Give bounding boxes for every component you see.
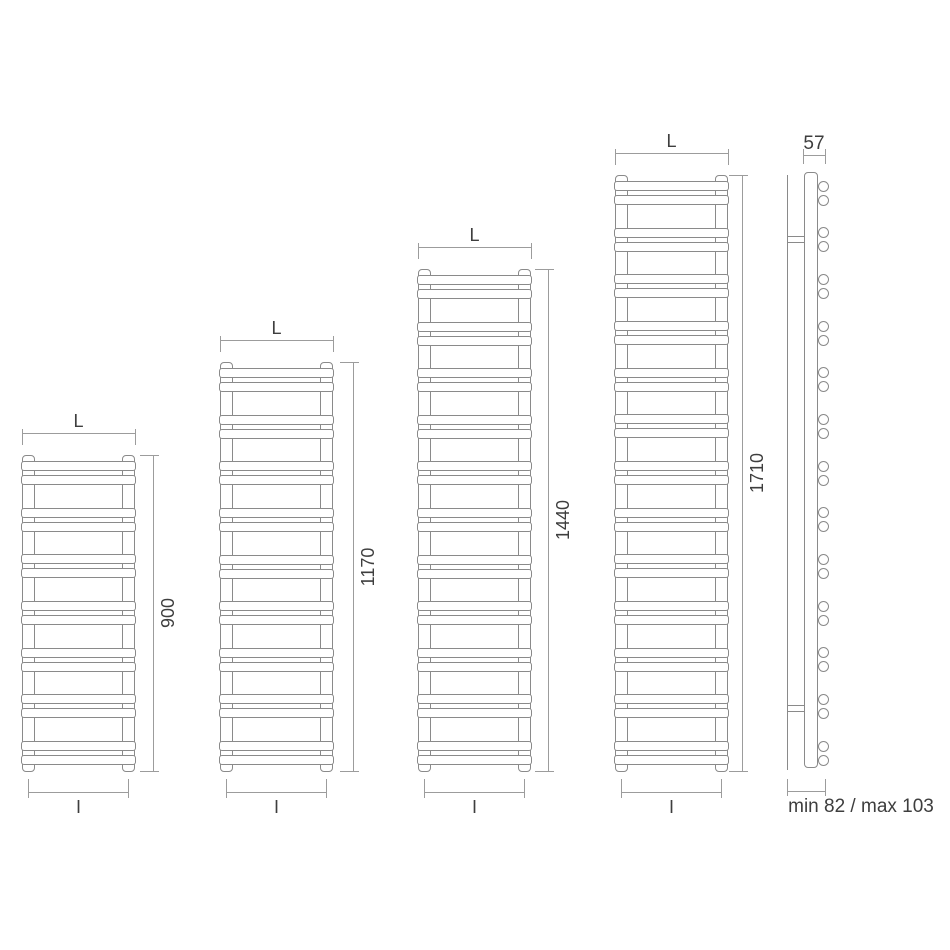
radiator-tube-right — [122, 455, 135, 772]
mounting-bracket-bottom — [788, 705, 804, 712]
radiator-rung — [21, 568, 136, 578]
radiator-rung — [614, 508, 729, 518]
radiator-rung — [21, 601, 136, 611]
radiator-rung — [417, 429, 532, 439]
radiator-rung — [417, 755, 532, 765]
width-dimension-line — [220, 340, 333, 341]
radiator-rung — [21, 508, 136, 518]
width-dimension-tick-left — [22, 429, 23, 445]
radiator-rung — [219, 755, 334, 765]
radiator-rung — [21, 615, 136, 625]
radiator-rung — [614, 708, 729, 718]
radiator-rung — [21, 708, 136, 718]
height-dimension-line — [153, 455, 154, 771]
interaxis-dimension-line — [424, 792, 525, 793]
radiator-rung — [614, 181, 729, 191]
wall-distance-tick-left — [787, 779, 788, 796]
width-dimension-line — [22, 433, 135, 434]
rung-end-circle — [818, 241, 829, 252]
rung-end-circle — [818, 694, 829, 705]
height-dimension-tick-top — [535, 269, 554, 270]
rung-end-circle — [818, 568, 829, 579]
rung-end-circle — [818, 321, 829, 332]
width-dimension-tick-left — [615, 149, 616, 165]
radiator-rung — [614, 568, 729, 578]
rung-end-circle — [818, 507, 829, 518]
rung-end-circle — [818, 461, 829, 472]
rung-end-circle — [818, 521, 829, 532]
width-dimension-line — [418, 247, 531, 248]
radiator-rung — [219, 461, 334, 471]
radiator-rung — [417, 569, 532, 579]
width-dimension-tick-right — [135, 429, 136, 445]
rung-end-circle — [818, 381, 829, 392]
height-dimension-label: 1440 — [554, 480, 572, 560]
radiator-rung — [614, 228, 729, 238]
radiator-rung — [417, 275, 532, 285]
radiator-rung — [417, 382, 532, 392]
radiator-rung — [614, 195, 729, 205]
radiator-rung — [417, 289, 532, 299]
radiator-rung — [614, 755, 729, 765]
radiator-rung — [614, 335, 729, 345]
width-dimension-tick-right — [333, 336, 334, 352]
radiator-rung — [417, 601, 532, 611]
width-dimension-label: L — [615, 132, 728, 150]
radiator-rung — [417, 615, 532, 625]
radiator-rung — [417, 368, 532, 378]
radiator-tube-left — [615, 175, 628, 772]
radiator-rung — [417, 741, 532, 751]
radiator-rung — [417, 508, 532, 518]
width-dimension-label: L — [220, 319, 333, 337]
interaxis-dimension-line — [226, 792, 327, 793]
radiator-rung — [21, 662, 136, 672]
rung-end-circle — [818, 227, 829, 238]
interaxis-dimension-label: I — [418, 798, 531, 816]
rung-end-circle — [818, 554, 829, 565]
radiator-rung — [219, 429, 334, 439]
rung-end-circle — [818, 367, 829, 378]
interaxis-dimension-label: I — [220, 798, 333, 816]
radiator-rung — [21, 648, 136, 658]
radiator-rung — [219, 741, 334, 751]
height-dimension-tick-top — [140, 455, 159, 456]
technical-drawing: L900IL1170IL1440IL1710I 57 min 82 / max … — [0, 0, 950, 950]
radiator-rung — [219, 415, 334, 425]
radiator-rung — [219, 569, 334, 579]
height-dimension-label: 900 — [159, 573, 177, 653]
interaxis-dimension-tick-right — [128, 779, 129, 798]
height-dimension-tick-top — [340, 362, 359, 363]
radiator-tube-left — [22, 455, 35, 772]
rung-end-circle — [818, 647, 829, 658]
rung-end-circle — [818, 475, 829, 486]
rung-end-circle — [818, 428, 829, 439]
interaxis-dimension-tick-left — [226, 779, 227, 798]
radiator-rung — [219, 555, 334, 565]
radiator-rung — [614, 522, 729, 532]
height-dimension-label: 1710 — [748, 433, 766, 513]
radiator-rung — [614, 694, 729, 704]
rung-end-circle — [818, 335, 829, 346]
radiator-rung — [219, 662, 334, 672]
height-dimension-tick-bottom — [140, 771, 159, 772]
height-dimension-line — [548, 269, 549, 771]
radiator-rung — [614, 615, 729, 625]
rung-end-circle — [818, 615, 829, 626]
interaxis-dimension-label: I — [22, 798, 135, 816]
interaxis-dimension-tick-right — [326, 779, 327, 798]
radiator-rung — [614, 274, 729, 284]
rung-end-circle — [818, 601, 829, 612]
radiator-rung — [614, 662, 729, 672]
radiator-rung — [614, 321, 729, 331]
side-tube — [804, 172, 818, 768]
radiator-rung — [219, 382, 334, 392]
width-dimension-line — [615, 153, 728, 154]
radiator-rung — [614, 414, 729, 424]
wall-distance-label: min 82 / max 103 — [786, 797, 936, 816]
depth-dimension-label: 57 — [774, 134, 854, 153]
width-dimension-tick-right — [531, 243, 532, 259]
radiator-rung — [417, 522, 532, 532]
depth-dimension-line — [803, 155, 826, 156]
wall-line — [787, 175, 788, 770]
height-dimension-line — [353, 362, 354, 771]
radiator-rung — [219, 475, 334, 485]
height-dimension-tick-bottom — [340, 771, 359, 772]
radiator-rung — [417, 415, 532, 425]
radiator-rung — [21, 741, 136, 751]
radiator-rung — [417, 322, 532, 332]
radiator-rung — [417, 662, 532, 672]
interaxis-dimension-tick-left — [28, 779, 29, 798]
radiator-rung — [21, 475, 136, 485]
width-dimension-tick-left — [220, 336, 221, 352]
radiator-rung — [417, 694, 532, 704]
radiator-rung — [219, 601, 334, 611]
interaxis-dimension-line — [621, 792, 722, 793]
radiator-rung — [614, 648, 729, 658]
radiator-rung — [614, 242, 729, 252]
interaxis-dimension-tick-left — [424, 779, 425, 798]
radiator-rung — [614, 554, 729, 564]
interaxis-dimension-line — [28, 792, 129, 793]
rung-end-circle — [818, 741, 829, 752]
radiator-rung — [21, 694, 136, 704]
radiator-rung — [21, 554, 136, 564]
rung-end-circle — [818, 274, 829, 285]
width-dimension-tick-right — [728, 149, 729, 165]
wall-distance-dimension-line — [787, 791, 826, 792]
radiator-rung — [219, 368, 334, 378]
mounting-bracket-top — [788, 236, 804, 243]
radiator-rung — [614, 601, 729, 611]
radiator-rung — [21, 522, 136, 532]
height-dimension-tick-bottom — [729, 771, 748, 772]
width-dimension-label: L — [418, 226, 531, 244]
radiator-rung — [21, 755, 136, 765]
width-dimension-label: L — [22, 412, 135, 430]
radiator-rung — [614, 741, 729, 751]
rung-end-circle — [818, 755, 829, 766]
radiator-rung — [614, 368, 729, 378]
height-dimension-tick-bottom — [535, 771, 554, 772]
rung-end-circle — [818, 288, 829, 299]
radiator-rung — [614, 288, 729, 298]
wall-distance-tick-right — [825, 779, 826, 796]
rung-end-circle — [818, 195, 829, 206]
radiator-rung — [417, 648, 532, 658]
radiator-rung — [614, 475, 729, 485]
radiator-rung — [219, 615, 334, 625]
radiator-rung — [417, 336, 532, 346]
interaxis-dimension-tick-left — [621, 779, 622, 798]
radiator-tube-right — [715, 175, 728, 772]
radiator-rung — [614, 428, 729, 438]
interaxis-dimension-label: I — [615, 798, 728, 816]
interaxis-dimension-tick-right — [524, 779, 525, 798]
interaxis-dimension-tick-right — [721, 779, 722, 798]
rung-end-circle — [818, 661, 829, 672]
radiator-rung — [219, 522, 334, 532]
rung-end-circle — [818, 414, 829, 425]
radiator-rung — [21, 461, 136, 471]
height-dimension-tick-top — [729, 175, 748, 176]
radiator-rung — [417, 708, 532, 718]
height-dimension-label: 1170 — [359, 527, 377, 607]
rung-end-circle — [818, 708, 829, 719]
width-dimension-tick-left — [418, 243, 419, 259]
radiator-rung — [219, 648, 334, 658]
height-dimension-line — [742, 175, 743, 771]
radiator-rung — [614, 382, 729, 392]
radiator-rung — [417, 461, 532, 471]
radiator-rung — [219, 508, 334, 518]
rung-end-circle — [818, 181, 829, 192]
radiator-rung — [417, 475, 532, 485]
radiator-rung — [614, 461, 729, 471]
radiator-rung — [417, 555, 532, 565]
radiator-rung — [219, 694, 334, 704]
radiator-rung — [219, 708, 334, 718]
